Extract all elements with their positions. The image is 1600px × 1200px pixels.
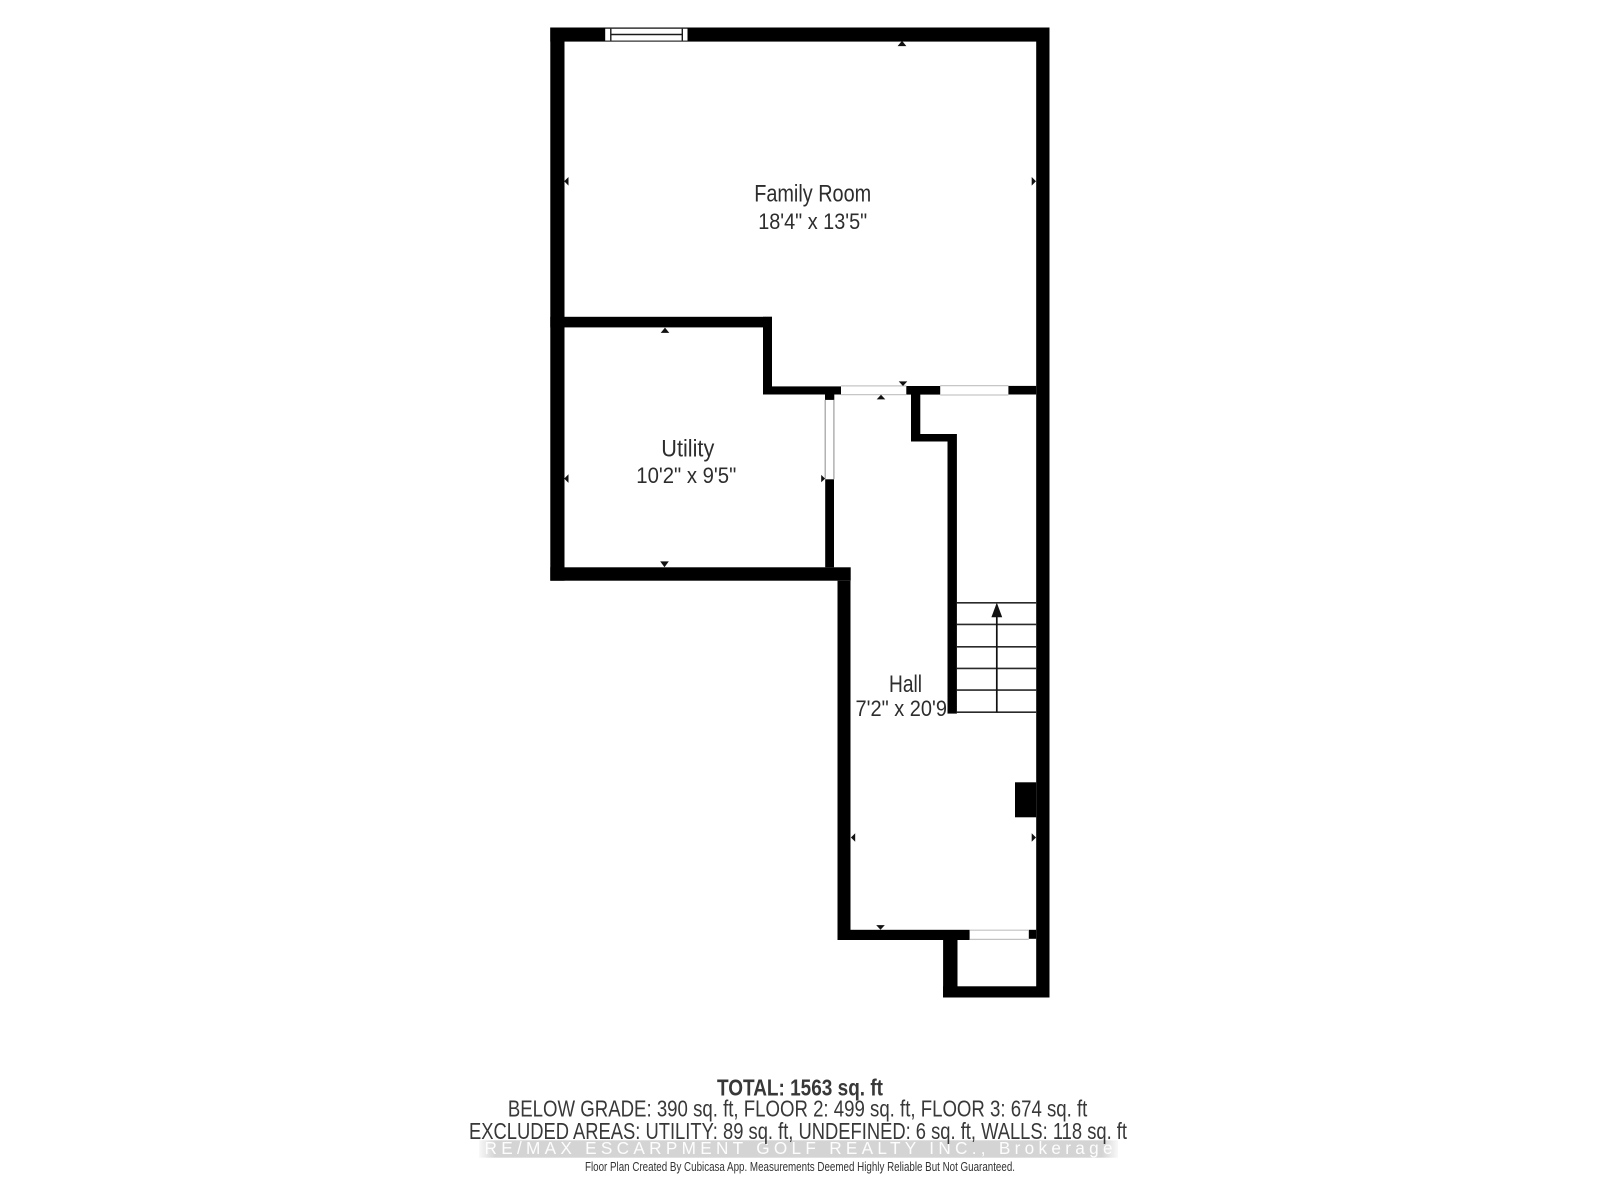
svg-text:Hall: Hall [889,671,922,698]
svg-text:10'2" x 9'5": 10'2" x 9'5" [636,463,736,488]
svg-text:18'4" x 13'5": 18'4" x 13'5" [758,209,867,234]
svg-text:EXCLUDED AREAS: UTILITY: 89 sq: EXCLUDED AREAS: UTILITY: 89 sq. ft, UNDE… [469,1118,1127,1144]
svg-text:Utility: Utility [661,435,715,462]
svg-text:7'2" x 20'9": 7'2" x 20'9" [856,696,955,721]
svg-text:Family Room: Family Room [754,180,871,207]
svg-text:Floor Plan Created By Cubicasa: Floor Plan Created By Cubicasa App. Meas… [585,1160,1015,1174]
